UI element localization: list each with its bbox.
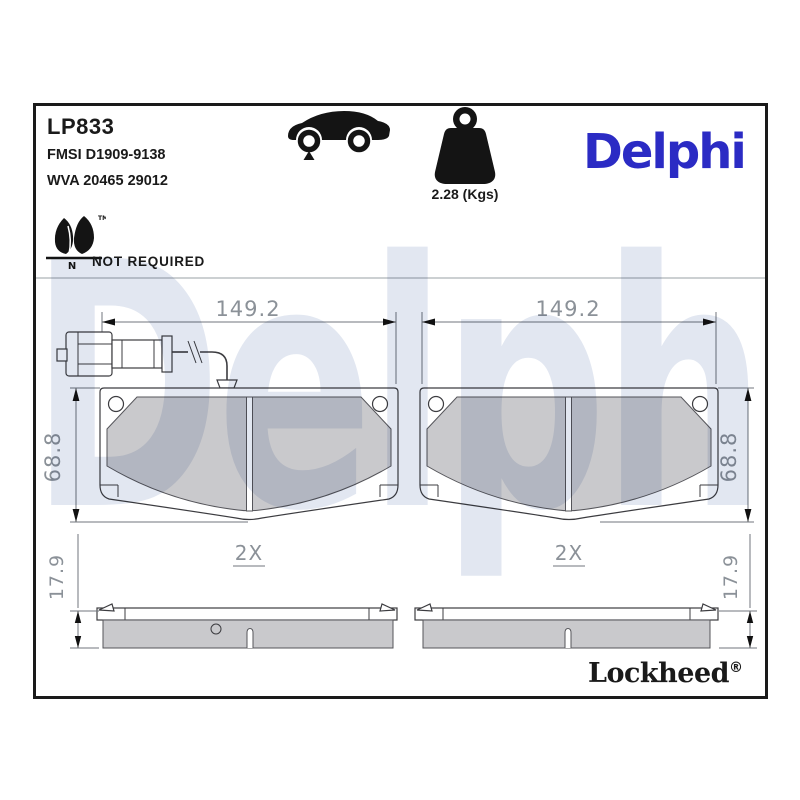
right-pad-drawing: 149.2 68.8 2X xyxy=(415,297,757,648)
connector-housing xyxy=(66,332,112,376)
sensor-wire-bend xyxy=(200,352,227,380)
dim-arrow-left xyxy=(102,319,115,326)
dim-thickness-right: 17.9 xyxy=(720,554,742,600)
front-axle-marker xyxy=(304,151,315,160)
rear-wheel xyxy=(351,133,368,150)
profile-backplate xyxy=(97,608,397,620)
sensor-tab xyxy=(217,380,237,388)
mounting-hole xyxy=(109,397,124,412)
leafmark-tm: TM xyxy=(98,215,106,222)
dim-width-right: 149.2 xyxy=(535,297,600,321)
weight-handle-hole xyxy=(460,114,471,125)
dim-thickness-left: 17.9 xyxy=(46,554,68,600)
weight-value: 2.28 (Kgs) xyxy=(419,186,511,202)
dim-arrow-right xyxy=(383,319,396,326)
dim-arrow-up xyxy=(73,388,80,401)
profile-backplate xyxy=(415,608,718,620)
profile-slot xyxy=(247,629,253,649)
dim-extension-lines xyxy=(70,611,99,648)
delphi-logo: Delphi xyxy=(583,124,745,180)
mounting-hole xyxy=(429,397,444,412)
wva-reference: WVA 20465 29012 xyxy=(47,173,168,189)
friction-center-slot xyxy=(247,397,253,511)
weight-body xyxy=(435,128,495,184)
mounting-hole xyxy=(373,397,388,412)
quantity-left: 2X xyxy=(235,541,263,565)
dim-arrow-down xyxy=(747,636,753,648)
weight-icon xyxy=(424,106,506,191)
wear-sensor-connector xyxy=(57,332,237,388)
leaf-right xyxy=(74,216,94,254)
leafmark-n: N xyxy=(68,261,76,272)
dim-arrow-down xyxy=(75,636,81,648)
dim-arrow-up xyxy=(747,611,753,623)
dim-arrow-up xyxy=(75,611,81,623)
front-axle-car-icon xyxy=(286,106,394,167)
mounting-hole xyxy=(693,397,708,412)
dim-arrow-right xyxy=(703,319,716,326)
wire-break-mark xyxy=(188,341,202,363)
front-wheel xyxy=(301,133,318,150)
registered-trademark-symbol: ® xyxy=(729,660,743,676)
profile-slot xyxy=(565,629,571,649)
friction-center-slot xyxy=(566,397,572,511)
right-pad-profile-view xyxy=(415,604,718,648)
dim-arrow-down xyxy=(73,509,80,522)
lockheed-logo: Lockheed® xyxy=(588,658,743,689)
dim-arrow-down xyxy=(745,509,752,522)
quantity-right: 2X xyxy=(555,541,583,565)
dim-arrow-up xyxy=(745,388,752,401)
connector-latch xyxy=(57,349,67,361)
dim-extension-lines xyxy=(422,312,716,384)
dim-height-left: 68.8 xyxy=(41,432,65,483)
lockheed-wordmark: Lockheed xyxy=(588,658,729,689)
left-pad-drawing: 149.2 xyxy=(41,297,398,648)
connector-flange xyxy=(162,336,172,372)
left-pad-profile-view xyxy=(97,604,397,648)
dim-width-left: 149.2 xyxy=(215,297,280,321)
dim-height-right: 68.8 xyxy=(717,432,741,483)
datasheet-page: Delphi 149.2 xyxy=(0,0,800,800)
dim-arrow-left xyxy=(422,319,435,326)
product-code: LP833 xyxy=(47,114,114,140)
fmsi-reference: FMSI D1909-9138 xyxy=(47,147,165,163)
copper-status-text: NOT REQUIRED xyxy=(92,254,205,269)
